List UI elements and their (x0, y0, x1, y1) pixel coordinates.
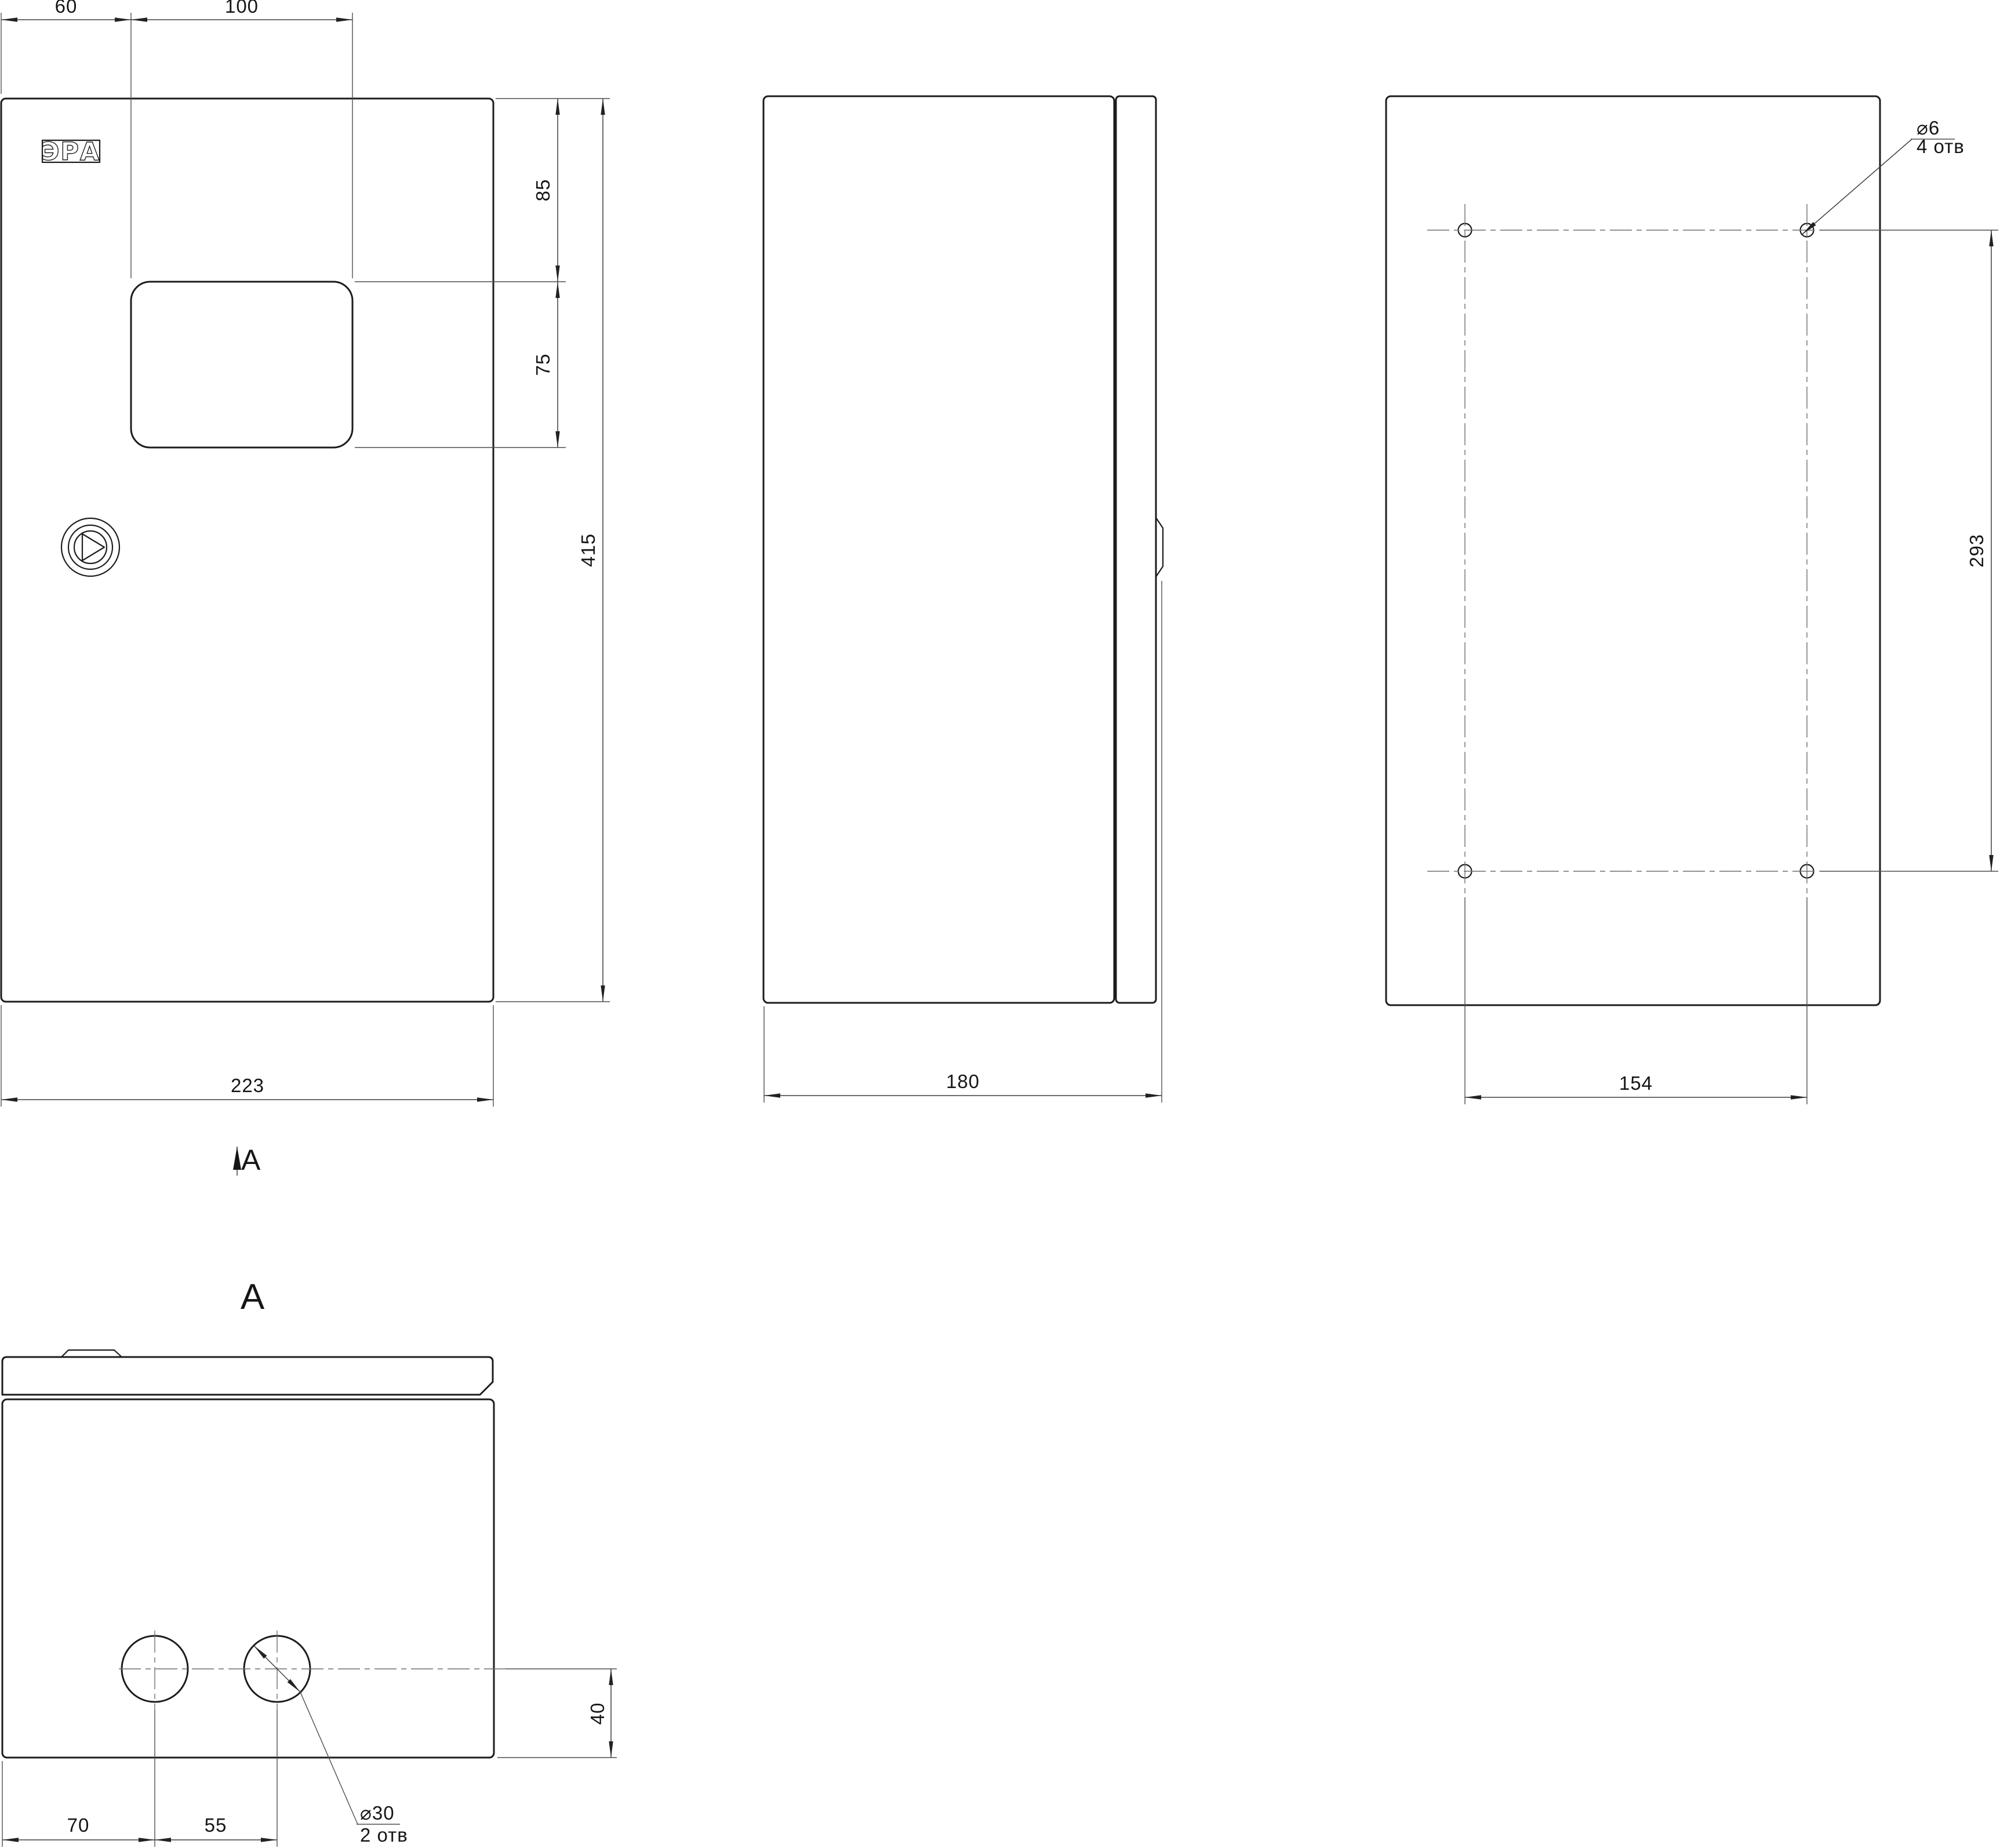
dim-label-100: 100 (225, 0, 259, 17)
side-body-outline (1116, 96, 1156, 1003)
mounting-holes (1459, 224, 1814, 878)
side-latch (1156, 518, 1163, 577)
front-view: ЭРА (1, 0, 610, 1176)
bottom-view: A ⌀30 2 отв 40 (2, 1277, 617, 1847)
meter-window (131, 282, 352, 448)
section-body-outline (2, 1399, 494, 1758)
front-dimension-lines (1, 20, 603, 1100)
dim-label-70: 70 (67, 1814, 90, 1836)
dim-label-415: 415 (577, 533, 599, 567)
section-lock-bump (61, 1350, 122, 1357)
brand-logo-text: ЭРА (41, 137, 100, 166)
back-panel-outline (1386, 96, 1880, 1005)
back-centerlines (1427, 204, 1998, 1104)
callout-diameter-30: ⌀30 (360, 1802, 395, 1824)
dim-label-223: 223 (231, 1075, 264, 1096)
bottom-dims-70-55: 70 55 (2, 1761, 277, 1847)
dim-label-85: 85 (532, 179, 554, 202)
section-door-band (2, 1357, 493, 1395)
dim-label-40: 40 (587, 1703, 608, 1725)
dim-label-293: 293 (1966, 534, 1987, 568)
side-door-outline (763, 96, 1114, 1003)
callout-qty-4-holes: 4 отв (1917, 136, 1965, 157)
section-marker: A (237, 1144, 261, 1176)
technical-drawing: ЭРА (0, 0, 2000, 1848)
dim-label-154: 154 (1619, 1072, 1653, 1094)
section-view-title: A (241, 1277, 265, 1317)
callout-qty-2-holes: 2 отв (360, 1824, 408, 1846)
hole-callout-leader: ⌀6 4 отв (1802, 117, 1965, 234)
side-view: 180 (763, 96, 1163, 1103)
dim-label-75: 75 (532, 354, 554, 376)
dim-label-180: 180 (946, 1071, 980, 1092)
dim-label-60: 60 (55, 0, 78, 17)
back-view: ⌀6 4 отв 293 154 (1386, 96, 1998, 1104)
side-extension-lines (764, 581, 1162, 1103)
dim-label-55: 55 (205, 1814, 227, 1836)
lock-icon (61, 518, 119, 576)
section-marker-letter: A (241, 1144, 261, 1176)
bottom-dim-40: 40 (497, 1669, 617, 1758)
drawing-sheet: ЭРА (0, 0, 2000, 1848)
front-extension-lines (1, 13, 610, 1107)
